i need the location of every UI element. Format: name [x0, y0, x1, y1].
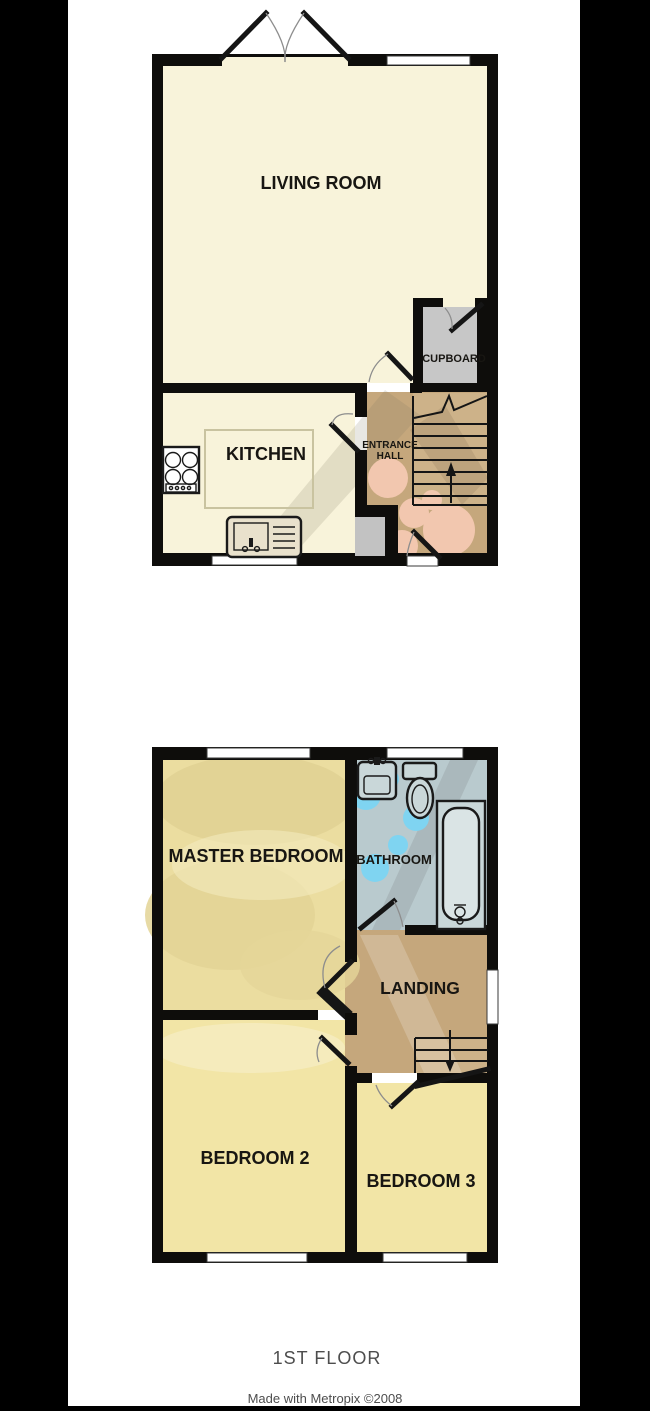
kitchen-sink [227, 517, 301, 557]
floorplan-page: LIVING ROOM KITCHEN ENTRANCE HALL CUPBOA… [0, 0, 650, 1411]
watermark-patch [155, 1023, 345, 1073]
first-floor-plan: MASTER BEDROOM BATHROOM LANDING BEDROOM … [145, 747, 498, 1263]
entrance-hall-label: ENTRANCE [362, 440, 418, 451]
credit-text: Made with Metropix ©2008 [248, 1391, 403, 1406]
bedroom-2-label: BEDROOM 2 [200, 1148, 309, 1168]
bedroom-3-floor [357, 1083, 488, 1252]
wall-left [152, 54, 163, 566]
floor-caption: 1ST FLOOR [273, 1348, 382, 1368]
wall-right [487, 54, 498, 566]
wall-landing-left [345, 1013, 357, 1035]
master-bedroom-window [207, 748, 310, 758]
wall-master-bathroom [345, 747, 357, 962]
wall-master-bedroom2 [152, 1010, 318, 1020]
wall-bedroom2-bedroom3 [345, 1083, 357, 1252]
landing-label: LANDING [380, 978, 460, 998]
wall-recess-stub [385, 517, 398, 556]
wall-kitchen-hall [355, 393, 367, 417]
hob [163, 447, 199, 493]
bathroom-window [387, 748, 463, 758]
bath [437, 801, 485, 929]
front-door-opening [407, 556, 438, 566]
basin [358, 757, 396, 799]
hall-recess [355, 517, 385, 556]
landing-window [487, 970, 498, 1024]
cupboard-door-opening [443, 298, 475, 307]
wall-recess-stub [355, 505, 398, 517]
living-room-window [387, 56, 470, 65]
living-room-label: LIVING ROOM [261, 173, 382, 193]
ground-floor-plan: LIVING ROOM KITCHEN ENTRANCE HALL CUPBOA… [152, 13, 498, 566]
bedroom-2-window [207, 1253, 307, 1262]
wall-landing-bedroom3 [345, 1073, 372, 1083]
bathroom-label: BATHROOM [356, 852, 432, 867]
wall-left [152, 747, 163, 1263]
wall-bottom [152, 553, 498, 566]
master-bedroom-label: MASTER BEDROOM [169, 846, 344, 866]
bedroom-3-label: BEDROOM 3 [366, 1171, 475, 1191]
wall-living-kitchen [152, 383, 367, 393]
entrance-hall-label: HALL [377, 451, 404, 462]
bedroom-3-window [383, 1253, 467, 1262]
cupboard-label: CUPBOARD [422, 353, 486, 365]
kitchen-label: KITCHEN [226, 444, 306, 464]
